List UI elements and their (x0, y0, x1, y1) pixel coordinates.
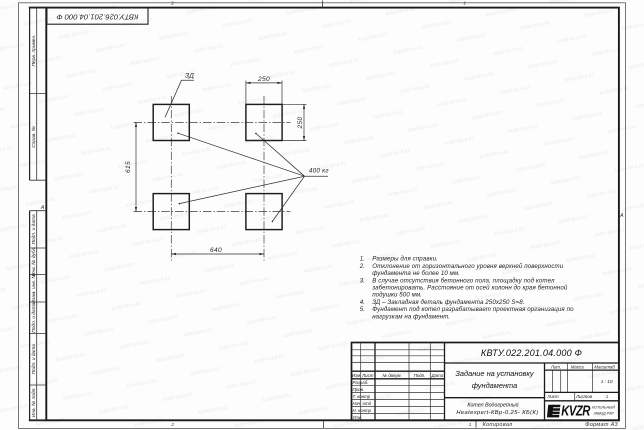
svg-text:Масса: Масса (571, 364, 585, 369)
svg-text:Изм: Изм (352, 373, 360, 378)
svg-text:615: 615 (125, 161, 132, 173)
svg-text:Листов: Листов (575, 394, 593, 399)
svg-text:KVZR: KVZR (561, 402, 591, 419)
svg-text:Разраб.: Разраб. (353, 380, 369, 385)
svg-text:Перв. примен.: Перв. примен. (31, 35, 37, 67)
svg-text:2: 2 (170, 422, 174, 427)
svg-text:4.: 4. (360, 299, 365, 306)
svg-text:Лит.: Лит. (550, 364, 561, 369)
svg-text:КОТЕЛЬНЫЙ: КОТЕЛЬНЫЙ (592, 405, 615, 409)
svg-text:Подп. и дата: Подп. и дата (31, 214, 37, 244)
svg-text:Размеры для справки.: Размеры для справки. (372, 256, 438, 263)
svg-text:КВТУ.026.201.04.000 Ф: КВТУ.026.201.04.000 Ф (57, 12, 139, 21)
svg-text:забетонировать. Расстояние от: забетонировать. Расстояние от осей колон… (371, 285, 568, 292)
svg-text:Инв. № подл.: Инв. № подл. (31, 387, 37, 417)
svg-text:250: 250 (257, 76, 270, 83)
svg-text:1: 1 (469, 422, 472, 427)
svg-text:Фундамент под котел разрабатыв: Фундамент под котел разрабатывает проект… (372, 306, 574, 313)
svg-text:1: 1 (463, 1, 466, 6)
svg-text:1 : 10: 1 : 10 (601, 379, 613, 384)
svg-text:5.: 5. (360, 306, 365, 313)
svg-text:Масштаб: Масштаб (594, 364, 615, 369)
svg-text:Heatexpert-КВр-0,25- КБ(К): Heatexpert-КВр-0,25- КБ(К) (456, 410, 538, 416)
svg-text:Утв.: Утв. (353, 415, 363, 420)
svg-text:подушки 500 мм.: подушки 500 мм. (372, 292, 422, 299)
svg-text:Пров.: Пров. (353, 387, 365, 392)
svg-text:ЗД: ЗД (185, 72, 194, 79)
svg-text:КВТУ.022.201.04.000 Ф: КВТУ.022.201.04.000 Ф (481, 348, 582, 358)
svg-text:Взам. инв. №: Взам. инв. № (31, 273, 37, 303)
svg-text:Лист: Лист (546, 394, 559, 399)
svg-text:Подп. и дата: Подп. и дата (31, 344, 37, 374)
svg-text:400 кг: 400 кг (309, 167, 329, 174)
svg-text:В случае отсутствия бетонного: В случае отсутствия бетонного пола, площ… (372, 277, 555, 284)
svg-text:Нач. отд: Нач. отд (353, 401, 372, 406)
svg-text:нагрузкам на фундамент.: нагрузкам на фундамент. (372, 313, 450, 320)
svg-text:Копировал: Копировал (482, 422, 513, 428)
svg-text:Подп. и дата: Подп. и дата (31, 302, 37, 332)
svg-text:Котел Водогрейный: Котел Водогрейный (467, 402, 518, 409)
svg-text:1.: 1. (360, 256, 365, 263)
svg-text:Формат А3: Формат А3 (585, 422, 618, 428)
svg-text:Лист: Лист (361, 373, 374, 378)
svg-text:Отклонение от горизонтального: Отклонение от горизонтального уровня вер… (372, 263, 564, 270)
svg-text:ЗАВОД РЗР: ЗАВОД РЗР (593, 412, 614, 416)
svg-text:640: 640 (210, 247, 222, 254)
svg-text:Подп.: Подп. (414, 373, 426, 378)
svg-text:Дата: Дата (431, 373, 444, 378)
svg-text:Справ. №: Справ. № (31, 126, 37, 148)
svg-text:Т. контр: Т. контр (353, 394, 371, 399)
svg-text:2: 2 (170, 1, 174, 6)
svg-text:А: А (619, 213, 624, 219)
svg-text:Инв. № дубл.: Инв. № дубл. (31, 246, 37, 276)
svg-text:2.: 2. (359, 263, 365, 270)
svg-text:Н. контр: Н. контр (353, 408, 372, 413)
svg-text:фундамента не более 10 мм.: фундамента не более 10 мм. (372, 270, 460, 277)
svg-text:3.: 3. (360, 277, 365, 284)
svg-text:фундамента: фундамента (472, 381, 517, 390)
svg-text:№ докум.: № докум. (382, 373, 401, 378)
svg-text:А: А (40, 205, 45, 211)
svg-text:250: 250 (297, 117, 304, 130)
svg-text:ЗД – Закладная деталь фундамен: ЗД – Закладная деталь фундамента 250х250… (372, 299, 524, 306)
svg-text:Задание на установку: Задание на установку (455, 369, 535, 378)
